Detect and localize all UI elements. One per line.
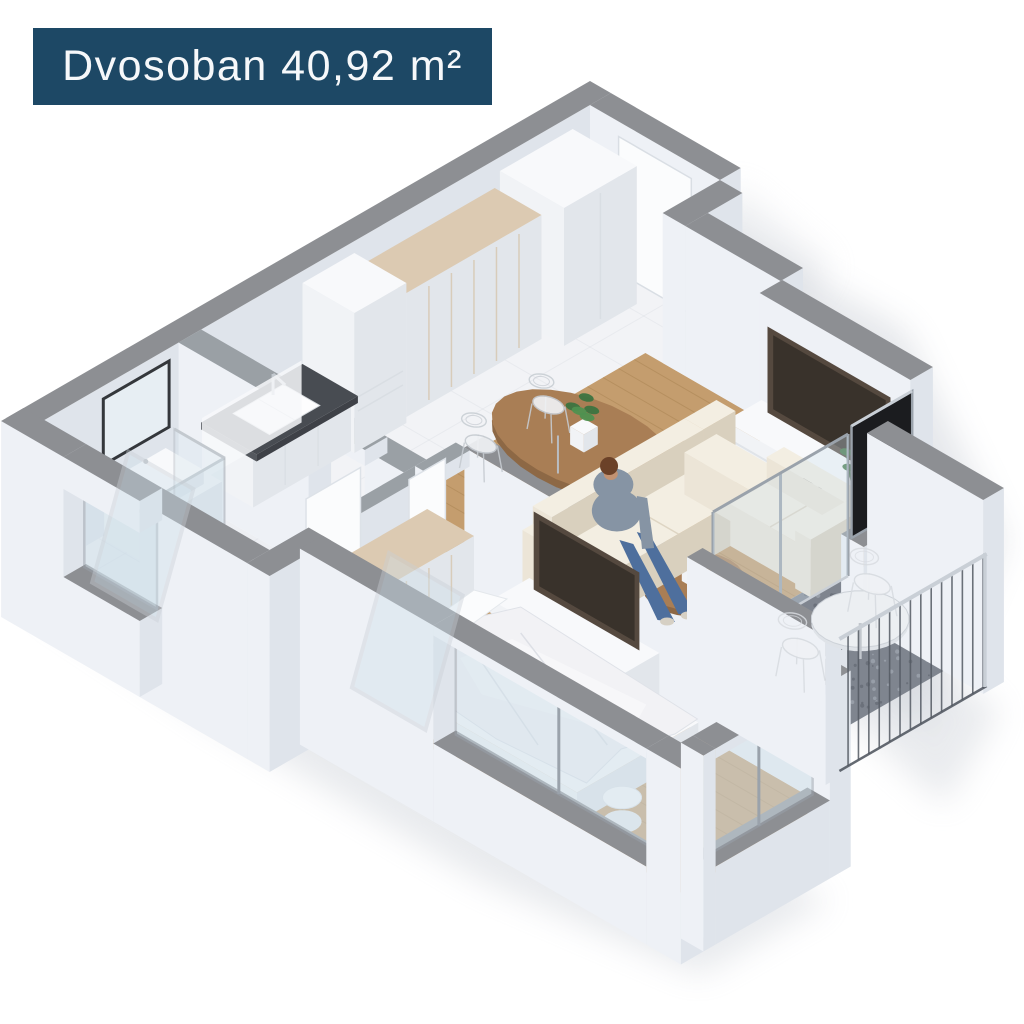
apartment-isometric-render bbox=[0, 0, 1024, 1024]
plan-title-badge: Dvosoban 40,92 m² bbox=[33, 28, 492, 105]
plan-title-text: Dvosoban 40,92 m² bbox=[62, 42, 463, 91]
floor-plan-page: Dvosoban 40,92 m² bbox=[0, 0, 1024, 1024]
